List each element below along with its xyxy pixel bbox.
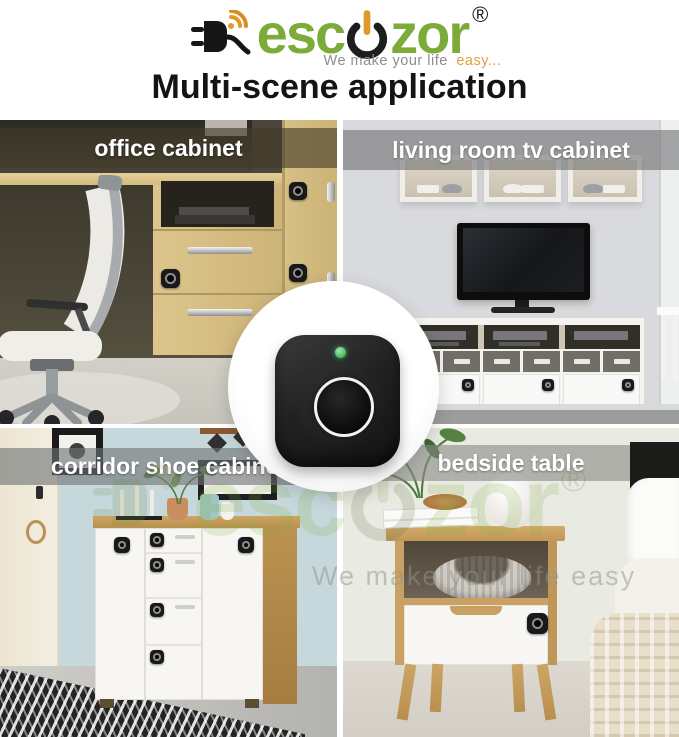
cabinet-lock-device [527,613,548,634]
cabinet-lock-device [150,533,164,547]
book-edge [384,516,478,521]
drawer [153,229,282,295]
scene-bedside-table: bedside table [343,428,679,737]
brand-tagline: We make your life easy... [73,53,679,69]
office-chair [0,175,162,424]
product-highlight-circle [228,281,439,492]
drawer [563,351,600,372]
page-title: Multi-scene application [0,68,679,107]
av-device-decor [493,331,547,340]
scene-label-office-cabinet: office cabinet [0,128,337,168]
header: esc zor ® We make your life easy... Mult… [0,0,679,120]
drawer-handle [534,359,550,364]
drawer-handle [175,605,195,609]
nightstand-side [395,541,404,665]
cabinet-lock-device [150,558,164,572]
cabinet-door [563,374,640,408]
nightstand-side [548,541,557,665]
dishware-decor [503,184,523,193]
wall-hook-decor [36,486,43,499]
side-table [657,307,679,315]
shoe-cabinet-side-panel [263,528,297,704]
folder-decor [175,215,255,224]
cabinet-lock-device [150,650,164,664]
bench-open-shelves [403,325,640,349]
drawer [146,599,201,646]
drawer-handle [175,560,195,564]
nightstand-drawer [404,605,548,665]
drawer-handle [614,359,630,364]
candle-holder [116,516,162,520]
cabinet-lock-device [114,537,130,553]
product-marketing-image: esc zor ® We make your life easy... Mult… [0,0,679,737]
drawer-handle [187,247,253,254]
cabinet-lock-device [622,379,634,391]
cabinet-door [483,374,560,408]
tagline-text: We make your life [324,53,448,69]
bedroom-floor [343,661,603,737]
av-device-decor [499,342,540,346]
side-table-leg [661,315,665,381]
drawer-handle [175,535,195,539]
bench-drawers [403,351,640,372]
vase-decor [221,502,234,520]
knit-blanket [590,613,679,737]
drawer [146,529,201,554]
cabinet-foot [245,699,259,708]
flat-screen-tv [457,223,590,300]
scene-label-living-room-tv-cabinet: living room tv cabinet [343,130,679,170]
drawer-handle [327,182,335,202]
drawer-handle [574,359,590,364]
cabinet-door [203,529,262,699]
cabinet-lock-device [238,537,254,553]
tagline-accent-text: easy... [456,53,501,69]
drawer [146,554,201,599]
drawer [483,351,520,372]
drawer [146,646,201,699]
books-decor [383,506,480,528]
drawer-handle [450,606,502,615]
cabinet-lock-device [462,379,474,391]
cabinet-lock-device [542,379,554,391]
cabinet-lock-device [150,603,164,617]
dishware-decor [603,185,625,193]
drawer-handle [187,309,253,316]
drawer [443,351,480,372]
dishware-decor [442,184,462,193]
drawer-handle [494,359,510,364]
tv-screen [463,228,584,292]
fingerprint-sensor [314,377,374,437]
registered-trademark: ® [472,4,488,26]
shoe-cabinet-body [95,528,263,700]
dishware-decor [522,185,544,193]
tv-stand-base [491,307,555,313]
cabinet-door [96,529,146,699]
drawer [523,351,560,372]
nightstand-shelf-edge [404,598,548,605]
shelf-cell [484,325,559,349]
open-shelf [161,181,274,227]
woven-basket-decor [433,556,531,600]
hanging-decor [26,520,46,544]
shelf-cell [565,325,640,349]
folder-decor [179,207,249,215]
av-device-decor [574,331,628,340]
candle-decor [135,486,139,516]
candle-decor [120,490,124,516]
cabinet-lock-device [289,264,307,282]
drawer [603,351,640,372]
cabinet-lock-device [161,269,180,288]
cabinet-lock-device [289,182,307,200]
led-indicator [335,347,346,358]
fingerprint-lock-device [275,335,400,467]
side-table-leg [673,315,677,381]
dishware-decor [417,185,439,193]
drawer-column [146,529,203,699]
dishware-decor [583,184,603,193]
cabinet-foot [100,699,114,708]
drawer-handle [454,359,470,364]
nightstand-top [386,526,565,541]
